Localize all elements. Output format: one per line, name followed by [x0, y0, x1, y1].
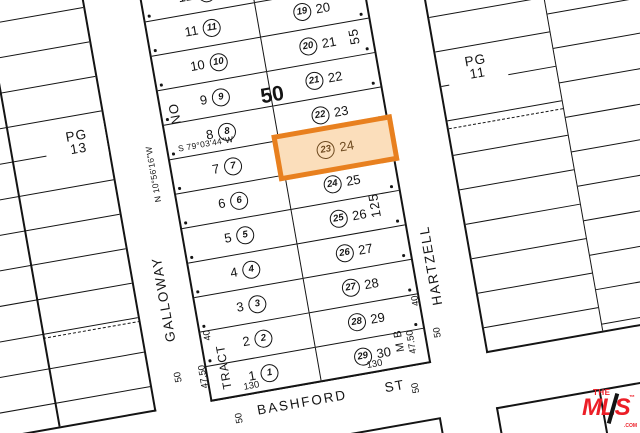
lot-number: 7 [211, 161, 221, 177]
lot-circle-number: 25 [328, 208, 349, 229]
lot-number: 11 [183, 22, 199, 39]
corner-tick [184, 221, 187, 224]
lot-circle-number: 21 [304, 70, 325, 91]
corner-tick [172, 152, 175, 155]
logo-trademark: ™ [629, 395, 635, 401]
street-label-galloway: GALLOWAY [146, 239, 183, 360]
lot-circle-number: 24 [322, 173, 343, 194]
corner-tick [202, 325, 205, 328]
corner-tick [160, 83, 163, 86]
lot-number: 20 [314, 0, 331, 16]
lot-circle-number: 2 [253, 328, 274, 349]
lot-circle-number: 5 [235, 224, 256, 245]
lot-number: 10 [189, 57, 206, 74]
corner-tick [396, 219, 399, 222]
plat-map-viewport: PG 13 GALLOWAY 50 N 10°56'16"W 121211111… [0, 0, 640, 433]
lot-number: 4 [229, 264, 239, 280]
corner-tick [166, 118, 169, 121]
corner-tick [154, 49, 157, 52]
corner-tick [208, 359, 211, 362]
block-south-middle [309, 417, 458, 433]
lot-number: 28 [363, 275, 380, 292]
lot-number: 25 [345, 172, 362, 189]
lot-circle-number: 3 [247, 293, 268, 314]
pg13-line2: 13 [69, 141, 88, 157]
corner-tick [196, 290, 199, 293]
corner-tick [408, 288, 411, 291]
corner-tick [365, 47, 368, 50]
lot-number: 26 [351, 206, 368, 223]
corner-tick [359, 13, 362, 16]
corner-tick [147, 14, 150, 17]
lot-number: 3 [235, 299, 245, 315]
corner-tick [178, 187, 181, 190]
lot-number: 27 [357, 240, 374, 257]
lot-circle-number: 10 [208, 51, 229, 72]
lot-number: 9 [199, 92, 209, 108]
lot-circle-number: 19 [292, 1, 313, 22]
lot-circle-number: 20 [298, 36, 319, 57]
corner-tick [190, 256, 193, 259]
lot-number: 5 [223, 230, 233, 246]
lot-circle-number: 27 [340, 277, 361, 298]
lot-number: 29 [369, 309, 386, 326]
lot-circle-number: 9 [210, 86, 231, 107]
lot-number: 21 [321, 34, 338, 51]
corner-tick [414, 323, 417, 326]
block-pg13: PG 13 [0, 0, 156, 433]
logo-com: .COM [624, 423, 637, 429]
spacer [205, 63, 210, 64]
dim-40-east: 40 [408, 289, 424, 313]
lot-circle-number: 26 [334, 242, 355, 263]
lot-circle-number: 4 [241, 259, 262, 280]
mls-logo[interactable]: THE MLS ™ .COM [580, 385, 638, 431]
corner-tick [402, 254, 405, 257]
lot-circle-number: 7 [223, 155, 244, 176]
lot-number: 2 [241, 333, 251, 349]
corner-tick [372, 82, 375, 85]
lot-number: 22 [327, 68, 344, 85]
lot-circle-number: 12 [196, 0, 217, 3]
galloway-width-label: 50 [170, 363, 188, 391]
lot-circle-number: 6 [229, 190, 250, 211]
lot-circle-number: 23 [315, 139, 336, 160]
lot-circle-number: 28 [346, 311, 367, 332]
lot-circle-number: 11 [201, 17, 222, 38]
lot-number: 12 [177, 0, 194, 5]
corner-tick [390, 185, 393, 188]
logo-mls: MLS [582, 394, 630, 422]
lot-number: 23 [333, 103, 350, 120]
lot-circle-number: 22 [310, 105, 331, 126]
bashford-width-label-2: 50 [408, 374, 424, 402]
street-suffix-st: ST [380, 376, 410, 397]
plat-map: PG 13 GALLOWAY 50 N 10°56'16"W 121211111… [0, 0, 640, 433]
lot-number: 24 [338, 137, 355, 154]
lot-number: 6 [217, 195, 227, 211]
pg11-line2: 11 [469, 65, 487, 81]
